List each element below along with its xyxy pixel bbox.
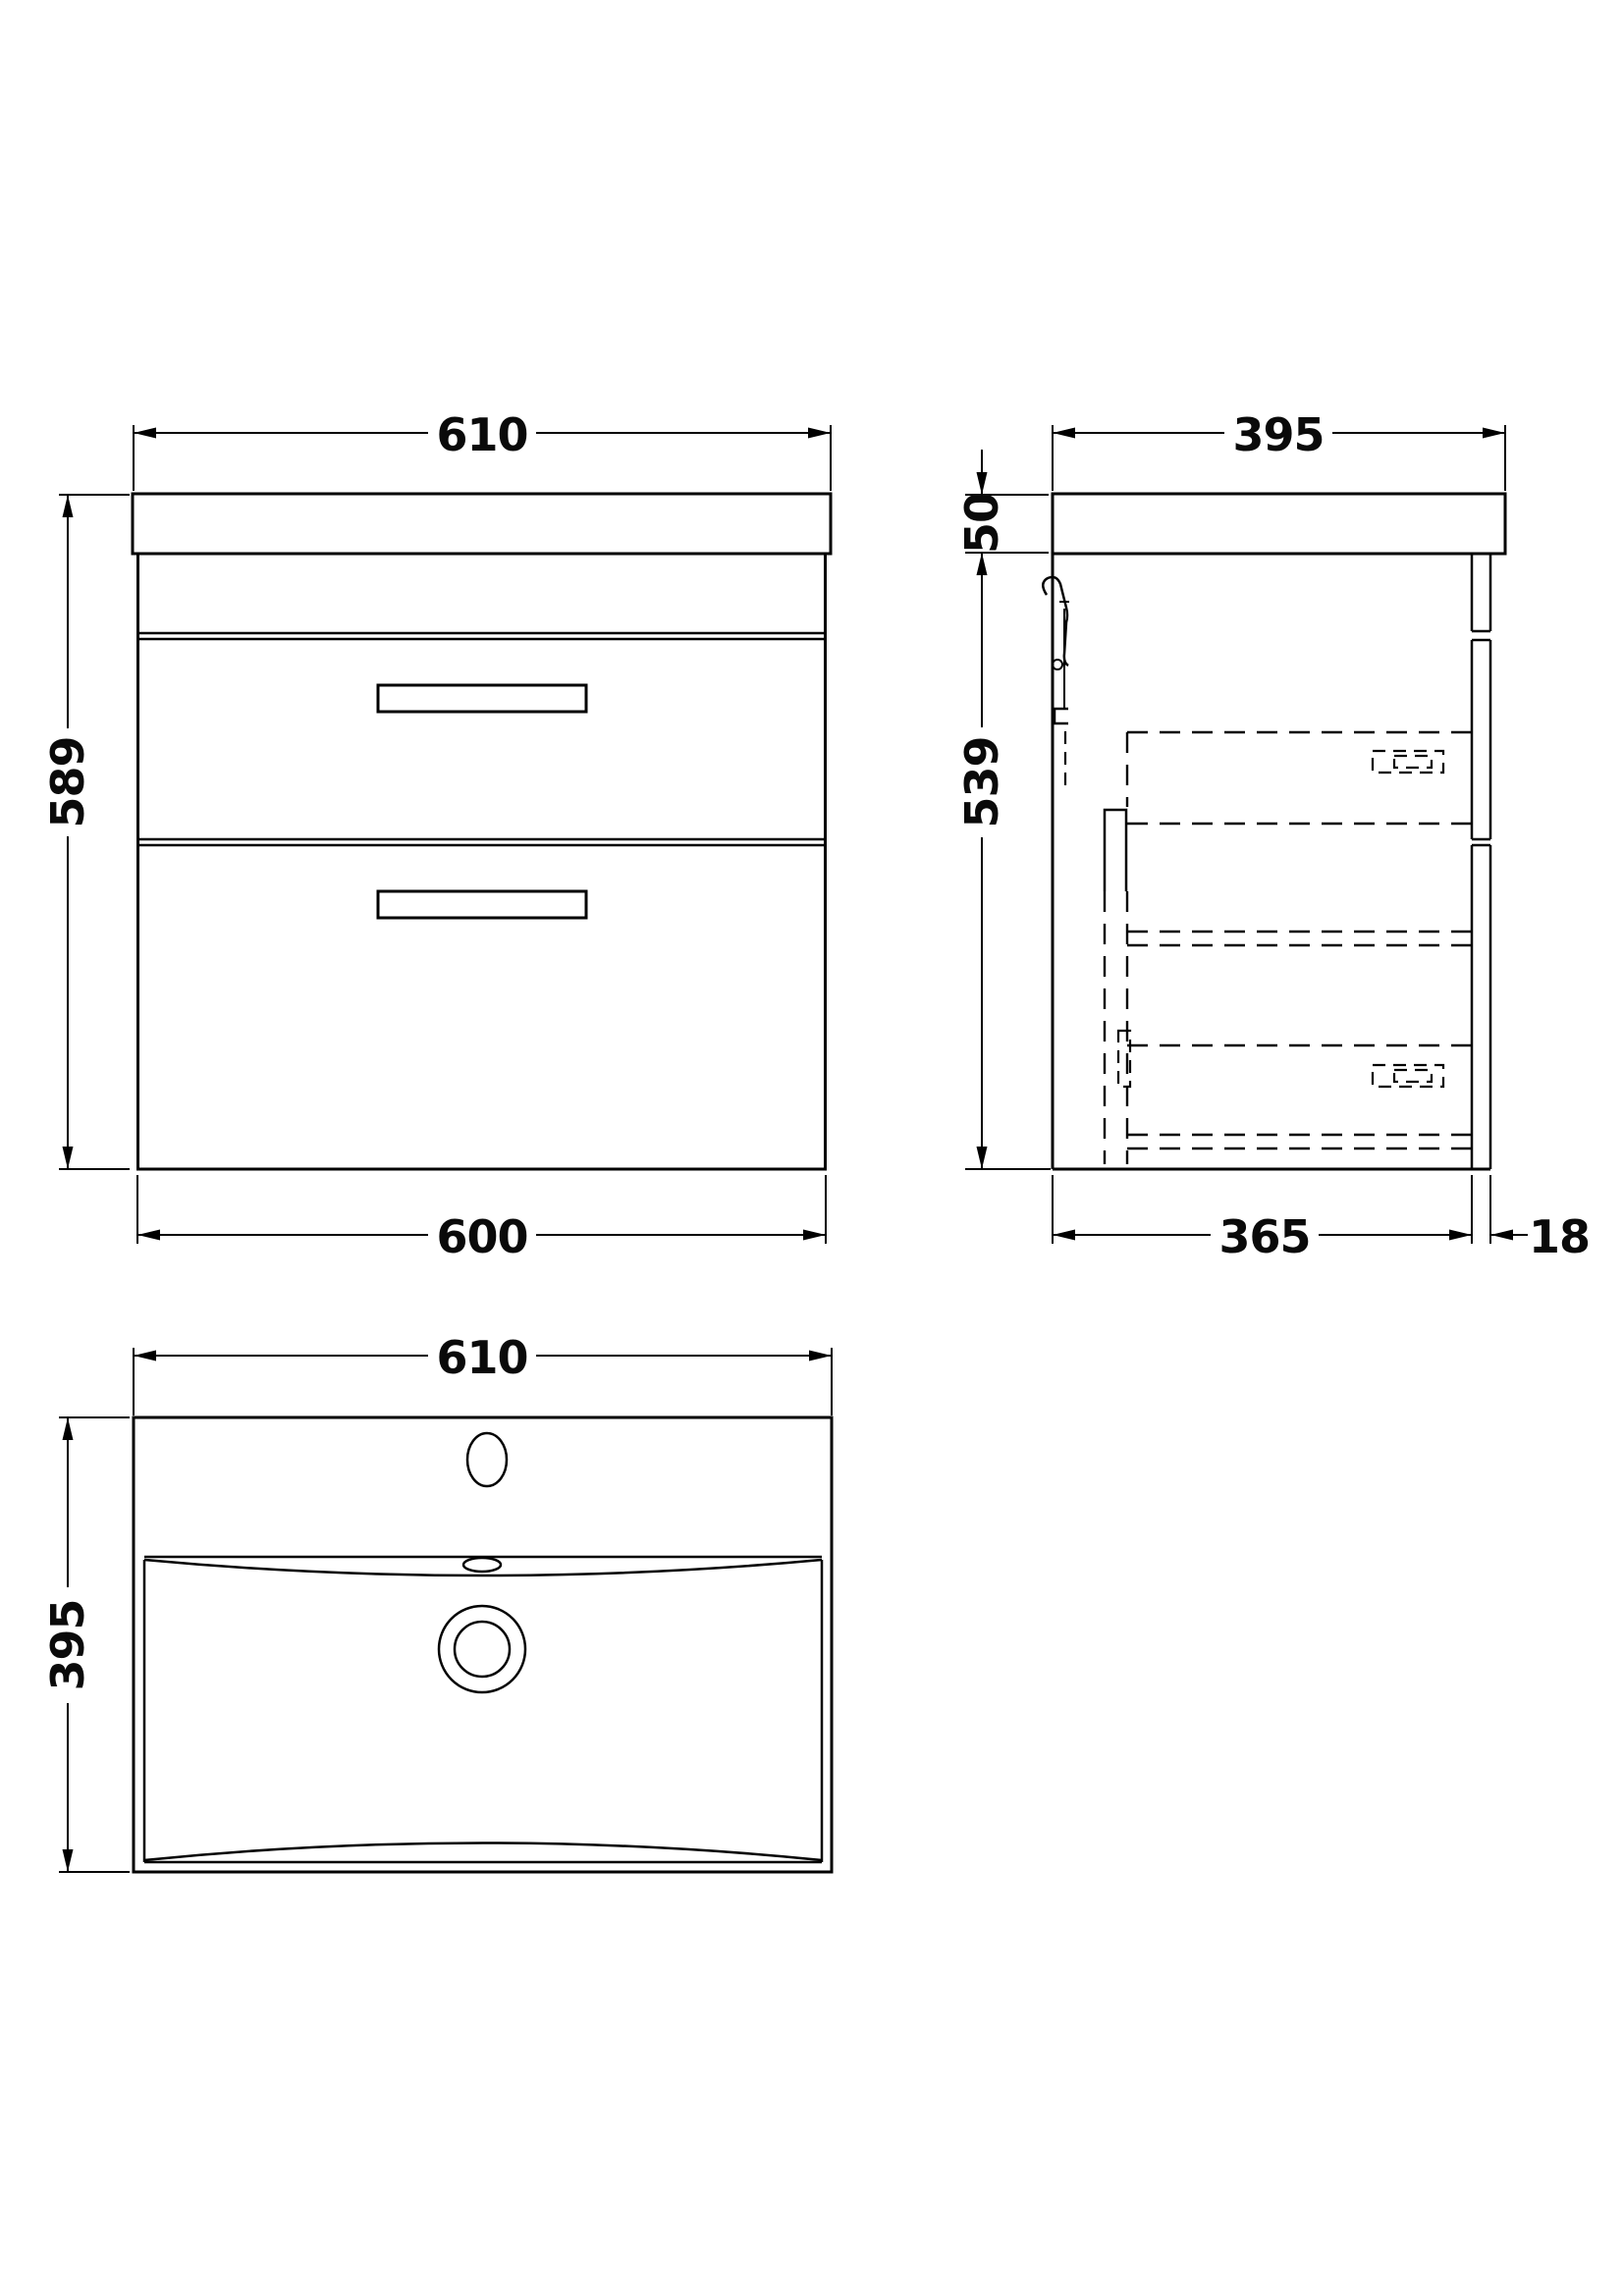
dim-plan-depth: 395 bbox=[41, 1417, 130, 1872]
drawer1-handle-recess bbox=[1373, 751, 1443, 773]
waste-outer-ring bbox=[439, 1606, 525, 1692]
front-height-label: 589 bbox=[41, 736, 94, 828]
front-drawer2-handle bbox=[378, 891, 586, 918]
front-width-bottom-label: 600 bbox=[436, 1210, 527, 1263]
plan-width-label: 610 bbox=[436, 1331, 527, 1384]
arrowhead bbox=[1449, 1230, 1472, 1241]
dim-front-height: 589 bbox=[41, 495, 130, 1169]
drawer2-handle-recess bbox=[1373, 1065, 1443, 1087]
dim-side-cabinet-height: 539 bbox=[955, 553, 1051, 1169]
dim-front-width-top: 610 bbox=[134, 408, 831, 491]
tap-hole bbox=[467, 1433, 507, 1486]
dim-front-width-bottom: 600 bbox=[137, 1175, 826, 1263]
drawer2-handle-recess-inner bbox=[1394, 1070, 1432, 1082]
side-view: 395 50 539 365 bbox=[955, 408, 1590, 1263]
arrowhead bbox=[977, 1147, 988, 1169]
side-worktop-height-label: 50 bbox=[955, 493, 1008, 554]
arrowhead bbox=[137, 1230, 160, 1241]
side-depth-bottom-label: 365 bbox=[1218, 1210, 1310, 1263]
drawing-sheet: 610 589 600 bbox=[0, 0, 1623, 2296]
dim-plan-width: 610 bbox=[134, 1331, 832, 1415]
arrowhead bbox=[1053, 1230, 1075, 1241]
drawer-runner-bracket bbox=[1105, 810, 1126, 891]
arrowhead bbox=[977, 472, 988, 495]
plan-depth-label: 395 bbox=[41, 1599, 94, 1690]
basin-back-wall-curve bbox=[144, 1560, 822, 1575]
front-drawer1-handle bbox=[378, 685, 586, 712]
arrowhead bbox=[63, 495, 74, 517]
drawer1-handle-recess-inner bbox=[1394, 756, 1432, 768]
side-drawer-front-strip bbox=[1472, 554, 1490, 1169]
front-worktop bbox=[133, 494, 831, 554]
dim-side-depth-top: 395 bbox=[1053, 408, 1505, 491]
arrowhead bbox=[809, 1351, 832, 1362]
wall-bracket-icon bbox=[1043, 577, 1069, 793]
side-hidden-drawer-lines bbox=[1105, 732, 1472, 1164]
side-worktop bbox=[1053, 494, 1505, 554]
dim-side-worktop-height: 50 bbox=[955, 450, 1049, 554]
basin-front-wall-curve bbox=[144, 1843, 822, 1861]
arrowhead bbox=[803, 1230, 826, 1241]
arrowhead bbox=[1483, 428, 1505, 439]
side-front-panel-label: 18 bbox=[1529, 1210, 1590, 1263]
arrowhead bbox=[1053, 428, 1075, 439]
arrowhead bbox=[63, 1147, 74, 1169]
arrowhead bbox=[63, 1417, 74, 1440]
arrowhead bbox=[1490, 1230, 1513, 1241]
side-depth-top-label: 395 bbox=[1232, 408, 1324, 461]
arrowhead bbox=[63, 1849, 74, 1872]
dim-side-depth-bottom: 365 18 bbox=[1053, 1175, 1590, 1263]
vanity-technical-drawing: 610 589 600 bbox=[0, 0, 1623, 2296]
arrowhead bbox=[134, 1351, 156, 1362]
bracket-foot bbox=[1055, 709, 1068, 723]
arrowhead bbox=[977, 553, 988, 575]
front-width-top-label: 610 bbox=[436, 408, 527, 461]
front-view: 610 589 600 bbox=[41, 408, 831, 1263]
overflow-hole bbox=[463, 1558, 501, 1572]
waste-inner-ring bbox=[455, 1622, 510, 1677]
arrowhead bbox=[134, 428, 156, 439]
front-cabinet bbox=[138, 554, 826, 1169]
plan-view: 610 395 bbox=[41, 1331, 832, 1872]
arrowhead bbox=[808, 428, 831, 439]
side-cabinet-height-label: 539 bbox=[955, 736, 1008, 828]
